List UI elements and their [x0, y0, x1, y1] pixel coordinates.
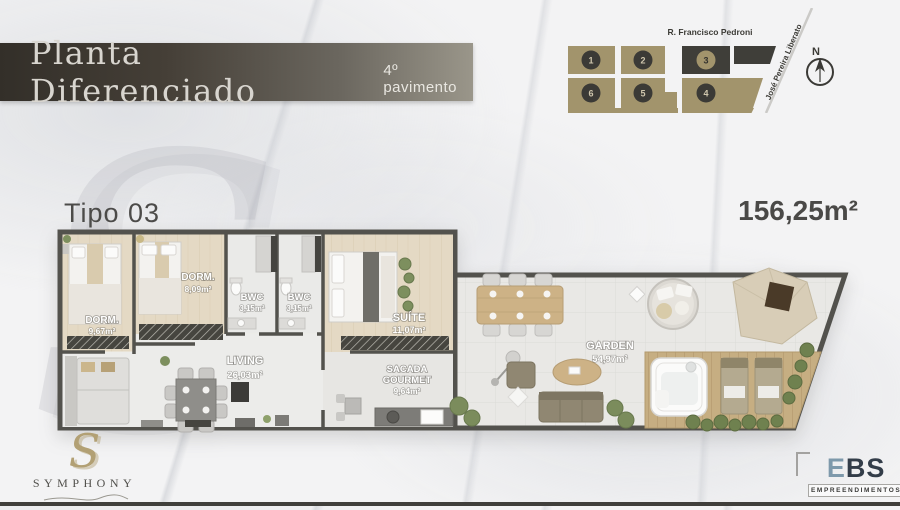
dorm1-name: DORM.: [85, 315, 119, 326]
dorm1-area: 9,67m²: [89, 326, 116, 336]
block-group-right: 3 4: [682, 46, 776, 113]
north-arrow-icon: N: [807, 46, 833, 85]
north-label: N: [812, 46, 820, 58]
garden-area-label: 54,97m²: [592, 354, 627, 365]
unit-4-number: 4: [703, 89, 708, 99]
sacada-gourmet-counter: [375, 408, 453, 426]
ebs-logo: EBS EMPREENDIMENTOS: [798, 452, 890, 497]
unit-3-number: 3: [703, 56, 708, 66]
ebs-name-bs: BS: [846, 453, 886, 483]
page-title: Planta Diferenciado: [30, 34, 367, 110]
ebs-name-e: E: [827, 453, 846, 483]
dorm2-deco: [136, 235, 144, 243]
total-area-label: 156,25m²: [738, 195, 858, 227]
living-sofa: [65, 356, 129, 426]
dorm1-bed: [63, 244, 122, 324]
street-top-label: R. Francisco Pedroni: [667, 27, 752, 37]
living-tv: [231, 382, 249, 402]
floor-subtitle: 4º pavimento: [383, 62, 473, 96]
dorm2-wardrobe: [139, 324, 223, 340]
sacada-area: 9,64m²: [394, 386, 421, 396]
block-group-left: 1 2 6 5: [568, 46, 678, 113]
bwc1-area: 3,15m²: [239, 304, 265, 313]
garden-dining-set: [477, 274, 563, 336]
garden-jacuzzi: [651, 358, 707, 416]
unit-5-number: 5: [640, 89, 645, 99]
dorm2-bed: [139, 242, 181, 314]
dorm1-wardrobe: [67, 336, 129, 349]
ebs-tagline: EMPREENDIMENTOS: [808, 484, 900, 497]
suite-wardrobe: [341, 336, 449, 350]
unit-2-number: 2: [640, 56, 645, 66]
living-plant: [160, 356, 170, 366]
living-area: 26,03m²: [227, 370, 262, 381]
sacada-name-line1: SACADA: [387, 364, 428, 375]
symphony-monogram-icon: S: [22, 428, 147, 474]
page-bottom-rule: [0, 502, 900, 506]
unit-1-number: 1: [588, 56, 593, 66]
ebs-frame-left: [796, 452, 810, 476]
symphony-logo: S SYMPHONY: [22, 428, 147, 509]
bwc2-area: 3,15m²: [286, 304, 312, 313]
ebs-name: EBS: [808, 455, 900, 482]
suite-name: SUÍTE: [393, 311, 425, 324]
bwc1-name: BWC: [241, 292, 264, 303]
site-key-map: R. Francisco Pedroni 1 2 6 5 3 4 José Pe…: [560, 8, 900, 113]
unit-6-number: 6: [588, 89, 593, 99]
dorm2-name: DORM.: [181, 272, 215, 283]
bwc2-name: BWC: [288, 292, 311, 303]
symphony-name: SYMPHONY: [22, 476, 147, 491]
title-banner: Planta Diferenciado 4º pavimento: [0, 43, 473, 101]
suite-area: 11,07m²: [392, 325, 425, 335]
suite-bed: [329, 252, 397, 322]
garden-name: GARDEN: [586, 340, 634, 352]
dorm1-plant: [63, 235, 71, 243]
sacada-name-line2: GOURMET: [383, 375, 432, 386]
unit-type-label: Tipo 03: [64, 198, 160, 229]
living-name: LIVING: [227, 355, 264, 367]
floor-plan: DORM. 9,67m² DORM. 8,09m² BWC 3,15m² BWC…: [45, 222, 865, 457]
dorm2-area: 8,09m²: [185, 284, 212, 294]
